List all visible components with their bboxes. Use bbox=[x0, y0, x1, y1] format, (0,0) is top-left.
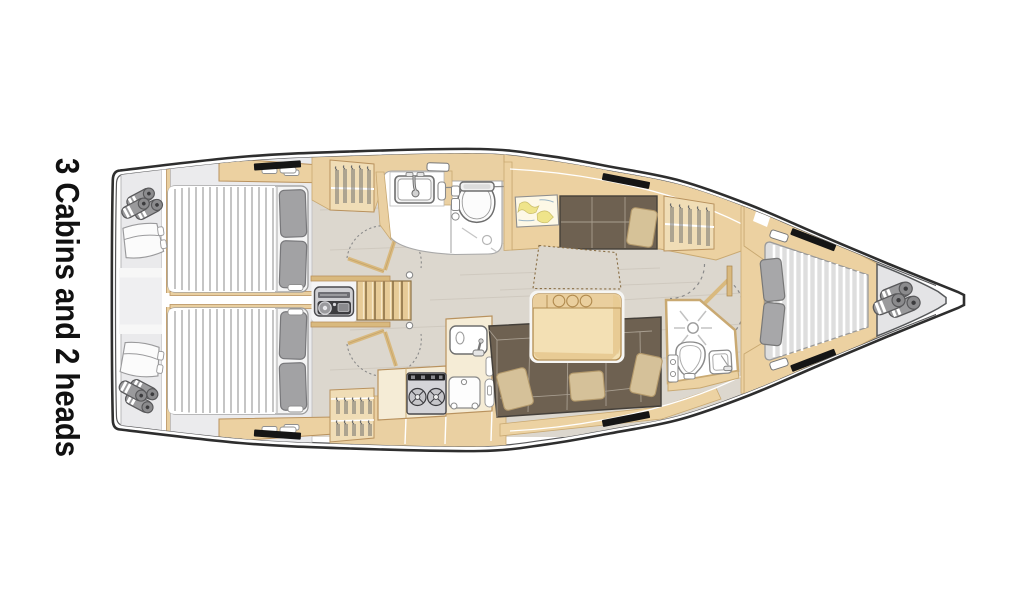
svg-text:3 Cabins and 2 heads: 3 Cabins and 2 heads bbox=[49, 158, 86, 457]
